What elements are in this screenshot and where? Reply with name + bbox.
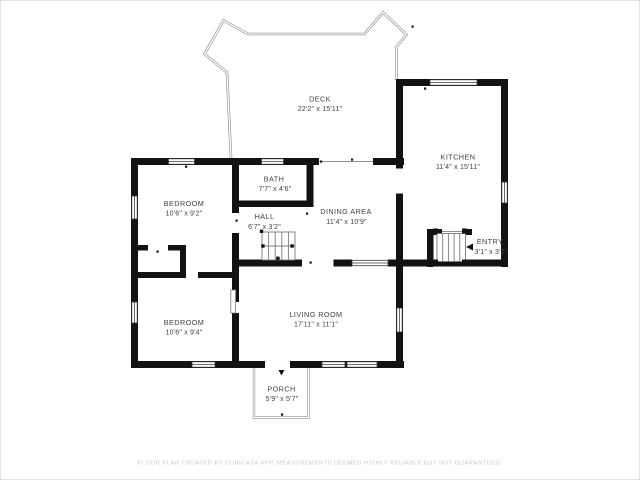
wall-segment: [232, 313, 239, 361]
hall-stairs: [260, 230, 295, 260]
deck-rail-inner: [205, 13, 407, 159]
front-door-arrow: [279, 370, 285, 376]
room-dims-dining-area: 11'4" x 10'9": [326, 219, 367, 226]
room-dims-porch: 5'9" x 5'7": [266, 396, 299, 403]
cased-opening: [352, 260, 388, 265]
room-dims-kitchen: 11'4" x 15'11": [436, 164, 480, 171]
room-dims-living-room: 17'11" x 11'1": [294, 322, 338, 329]
wall-segment: [334, 260, 353, 267]
wall-segment: [232, 201, 314, 208]
wall-segment: [131, 245, 148, 251]
window: [322, 362, 345, 367]
room-label-entry: ENTRY: [477, 237, 504, 246]
room-label-hall: HALL: [255, 212, 275, 221]
wall-segment: [427, 229, 434, 267]
wall-segment: [131, 158, 319, 165]
page-frame: [1, 1, 640, 480]
window: [430, 80, 477, 85]
door-markers: [157, 26, 427, 416]
room-label-porch: PORCH: [267, 385, 295, 394]
wall-segment: [180, 245, 186, 278]
window: [347, 362, 377, 367]
room-label-deck: DECK: [309, 95, 331, 104]
door-opening: [396, 169, 404, 194]
room-dims-hall: 6'7" x 3'2": [248, 224, 281, 231]
room-label-kitchen: KITCHEN: [441, 153, 476, 162]
room-label-bath: BATH: [264, 175, 285, 184]
window: [169, 159, 195, 164]
room-dims-bedroom-2: 10'6" x 9'4": [166, 330, 203, 337]
window: [502, 182, 507, 203]
room-dims-bath: 7'7" x 4'6": [259, 186, 292, 193]
room-dims-entry: 3'1" x 3'2": [475, 249, 508, 256]
window: [132, 196, 137, 219]
stair-outline: [437, 234, 466, 262]
room-label-dining-area: DINING AREA: [320, 207, 371, 216]
deck-outline: [205, 13, 407, 159]
room-dims-deck: 22'2" x 15'11": [298, 106, 343, 113]
door-leaf: [231, 290, 236, 313]
wall-segment: [131, 272, 180, 278]
floor-plan-page: DECK 22'2" x 15'11" KITCHEN 11'4" x 15'1…: [0, 0, 640, 480]
window: [262, 159, 284, 164]
entry-door-arrow: [466, 244, 473, 251]
room-label-living-room: LIVING ROOM: [289, 310, 342, 319]
window: [397, 308, 402, 332]
door-opening: [265, 361, 290, 369]
footer: FLOOR PLAN CREATED BY CUBICASA APP, MEAS…: [138, 461, 502, 467]
room-label-bedroom-1: BEDROOM: [164, 199, 205, 208]
door-openings: [232, 169, 404, 369]
window: [132, 302, 137, 323]
wall-segment: [131, 158, 138, 368]
room-dims-bedroom-1: 10'6" x 9'2": [166, 211, 203, 218]
footer-disclaimer: FLOOR PLAN CREATED BY CUBICASA APP, MEAS…: [138, 461, 502, 467]
room-label-bedroom-2: BEDROOM: [164, 318, 205, 327]
wall-segment: [232, 260, 302, 267]
floor-plan-canvas: DECK 22'2" x 15'11" KITCHEN 11'4" x 15'1…: [0, 0, 640, 480]
wall-segment: [198, 272, 235, 278]
window: [192, 362, 215, 367]
door-opening: [232, 213, 240, 233]
